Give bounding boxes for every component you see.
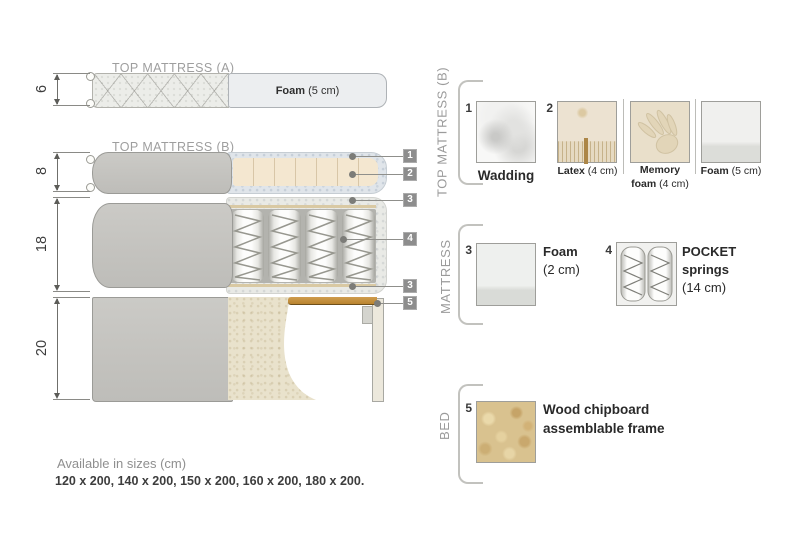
callout-chip-5: 5	[403, 296, 417, 310]
legend-item-number-4: 4	[598, 243, 612, 257]
top-mattress-b-foam-blocks	[233, 158, 378, 186]
dim-line	[57, 199, 58, 289]
memory-foam-swatch	[630, 101, 690, 163]
arrow-down-icon	[54, 393, 60, 399]
corner-dot	[86, 99, 95, 108]
dim-label-20: 20	[34, 335, 50, 361]
foam-2cm-swatch	[476, 243, 536, 306]
dim-tick	[53, 191, 90, 192]
pocket-spring	[268, 210, 301, 282]
legend-section-mattress: MATTRESS	[436, 238, 455, 316]
legend-item-number-1: 1	[458, 101, 472, 115]
wadding-caption: Wadding	[456, 167, 556, 185]
pocket-spring	[342, 210, 375, 282]
spring-coil-icon	[342, 210, 375, 282]
callout-line-5	[378, 303, 403, 304]
corner-dot	[86, 155, 95, 164]
callout-dot-5	[374, 300, 381, 307]
callout-dot-3b	[349, 283, 356, 290]
callout-chip-4: 4	[403, 232, 417, 246]
latex-swatch	[557, 101, 617, 163]
legend-item-number-3: 3	[458, 243, 472, 257]
available-sizes-title: Available in sizes (cm)	[57, 456, 186, 471]
callout-line-1	[353, 156, 403, 157]
arrow-up-icon	[54, 298, 60, 304]
callout-chip-3a: 3	[403, 193, 417, 207]
wood-chipboard-caption: Wood chipboardassemblable frame	[543, 401, 723, 438]
callout-line-3b	[353, 286, 403, 287]
legend-item-number-5: 5	[458, 401, 472, 415]
callout-dot-2	[349, 171, 356, 178]
arrow-down-icon	[54, 185, 60, 191]
dim-line	[57, 299, 58, 397]
latex-caption: Latex (4 cm)	[545, 165, 630, 179]
foam-5cm-swatch	[701, 101, 761, 163]
spring-coil-icon	[305, 210, 338, 282]
legend-divider	[695, 99, 696, 174]
bed-wood-slat	[288, 297, 377, 305]
spring-coil-icon	[268, 210, 301, 282]
callout-dot-4	[340, 236, 347, 243]
foam-a-label: Foam (5 cm)	[276, 85, 340, 97]
mattress-construction-diagram: TOP MATTRESS (A) Foam (5 cm) 6 TOP MATTR…	[0, 0, 800, 533]
callout-line-2	[353, 174, 403, 175]
dim-tick	[53, 105, 90, 106]
arrow-up-icon	[54, 153, 60, 159]
dim-label-8: 8	[34, 158, 50, 184]
foam-5cm-caption: Foam (5 cm)	[689, 165, 773, 179]
dim-tick	[53, 399, 90, 400]
dim-label-18: 18	[34, 231, 50, 257]
pocket-spring	[305, 210, 338, 282]
dim-tick	[53, 291, 90, 292]
legend-section-top-mattress-b: TOP MATTRESS (B)	[432, 70, 452, 194]
bed-leg	[372, 298, 384, 402]
mattress-fabric-cover	[92, 203, 233, 288]
callout-dot-3a	[349, 197, 356, 204]
wadding-swatch	[476, 101, 536, 163]
arrow-up-icon	[54, 74, 60, 80]
memory-foam-caption: Memory foam (4 cm)	[622, 164, 698, 191]
top-mattress-a-quilted-layer	[92, 73, 229, 108]
callout-line-4	[344, 239, 403, 240]
spring-coil-icon	[231, 210, 264, 282]
pocket-spring	[231, 210, 264, 282]
mattress-top-foam-line	[228, 205, 376, 208]
pocket-springs-caption: POCKETsprings(14 cm)	[682, 243, 762, 297]
top-mattress-a-foam-layer: Foam (5 cm)	[228, 73, 387, 108]
legend-divider	[623, 99, 624, 174]
wood-chipboard-swatch	[476, 401, 536, 463]
callout-line-3a	[353, 200, 403, 201]
callout-chip-1: 1	[403, 149, 417, 163]
arrow-down-icon	[54, 285, 60, 291]
bed-fabric-beige	[228, 297, 318, 400]
hand-imprint-icon	[631, 102, 689, 162]
arrow-down-icon	[54, 99, 60, 105]
top-mattress-b-fabric-cover	[92, 152, 232, 194]
pocket-springs-icon	[617, 243, 676, 305]
callout-chip-3b: 3	[403, 279, 417, 293]
callout-chip-2: 2	[403, 167, 417, 181]
arrow-up-icon	[54, 198, 60, 204]
latex-strand	[584, 138, 588, 164]
legend-item-number-2: 2	[539, 101, 553, 115]
pocket-springs-swatch	[616, 242, 677, 306]
available-sizes-list: 120 x 200, 140 x 200, 150 x 200, 160 x 2…	[55, 474, 364, 488]
bed-fabric-gray	[92, 297, 233, 402]
legend-section-bed: BED	[435, 404, 454, 448]
dim-label-6: 6	[34, 76, 50, 102]
callout-dot-1	[349, 153, 356, 160]
